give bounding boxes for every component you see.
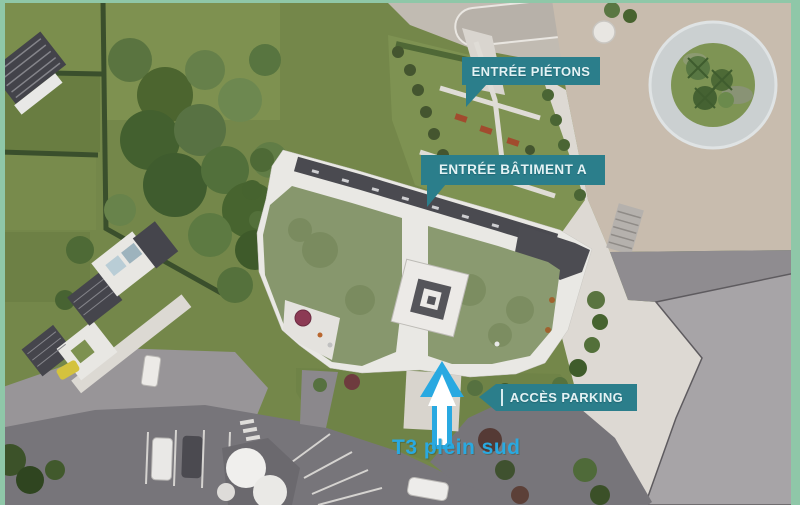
label-entree-pietons: ENTRÉE PIÉTONS [462,57,600,85]
pietons-pointer-icon [466,84,487,107]
left-arrow-tick [501,389,503,406]
label-entree-batiment-a: ENTRÉE BÂTIMENT A [421,155,605,185]
site-plan-image: ENTRÉE PIÉTONS ENTRÉE BÂTIMENT A ACCÈS P… [0,0,800,505]
label-acces-parking: ACCÈS PARKING [496,384,637,411]
frame-border-top [0,0,800,3]
label-t3-plein-sud: T3 plein sud [392,436,521,460]
frame-border-right [791,0,800,505]
left-arrow-icon [479,384,496,411]
roundabout [650,22,776,148]
aerial-render [0,0,800,505]
batiment-pointer-icon [427,184,446,207]
frame-border-left [0,0,5,505]
